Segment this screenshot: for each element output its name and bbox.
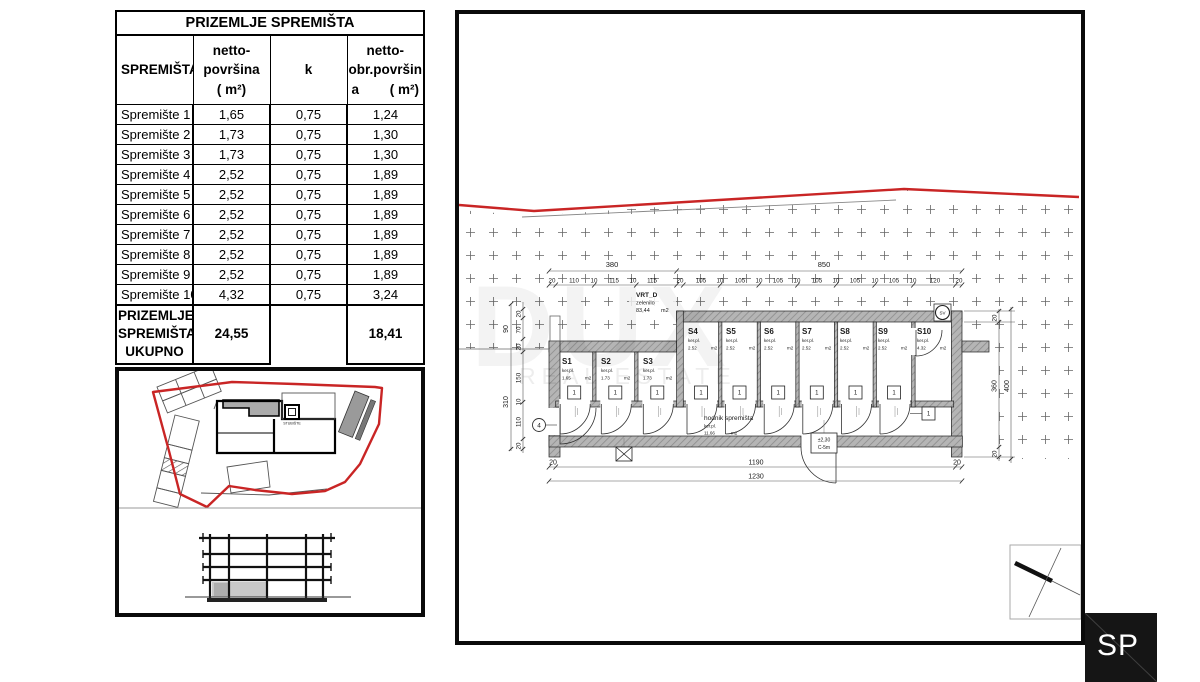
dim-seg: 105	[696, 278, 707, 285]
dim-seg: 10	[756, 278, 763, 285]
unit-sub: ker.pl.	[601, 368, 613, 373]
dim-seg: 10	[591, 278, 598, 285]
floor-plan-panel: VRT_D zelenilo 83,44 m2 DUX REA	[455, 10, 1085, 645]
dim-seg: 110	[569, 278, 579, 285]
hdr-line: netto-	[367, 43, 405, 58]
corridor-area: 11.66	[704, 431, 715, 436]
unit-area: 2.52	[688, 346, 697, 351]
unit-area: 1.73	[601, 376, 610, 381]
unit-id: S3	[643, 357, 653, 366]
logo-text: SP	[1097, 629, 1139, 663]
row-obr: 1,30	[347, 145, 424, 165]
elevation-gray-small	[214, 583, 229, 596]
row-netto: 2,52	[193, 165, 270, 185]
corridor-name: hodnik spremišta	[704, 415, 754, 422]
unit-m2: m2	[585, 376, 592, 381]
unit-sub: ker.pl.	[802, 338, 814, 343]
row-k: 0,75	[270, 205, 347, 225]
row-obr: 1,89	[347, 185, 424, 205]
site-plan: STUBIŠTE	[153, 371, 382, 507]
row-netto: 2,52	[193, 245, 270, 265]
unit-sub: ker.pl.	[688, 338, 700, 343]
row-name: Spremište 4	[116, 165, 193, 185]
row-netto: 2,52	[193, 205, 270, 225]
unit-id: S6	[764, 327, 774, 336]
dim-seg: 10	[717, 278, 724, 285]
row-netto: 2,52	[193, 185, 270, 205]
row-netto: 2,52	[193, 225, 270, 245]
row-obr: 1,89	[347, 265, 424, 285]
unit-area: 2.52	[802, 346, 811, 351]
dim-seg: 20	[992, 314, 999, 321]
row-netto: 4,32	[193, 285, 270, 306]
site-retaining-walls	[339, 391, 377, 440]
dim-seg: 20	[953, 460, 961, 467]
dim-seg: 20	[549, 460, 557, 467]
sv-label: SV	[939, 311, 945, 316]
table-row: Spremište 92,520,751,89	[116, 265, 424, 285]
dim-seg: 105	[735, 278, 746, 285]
dim-seg: 20	[992, 450, 999, 457]
row-netto: 1,65	[193, 105, 270, 125]
hdr-frag: a	[352, 80, 360, 100]
row-name: Spremište 8	[116, 245, 193, 265]
unit-area: 4.32	[917, 346, 926, 351]
row-name: Spremište 9	[116, 265, 193, 285]
dim-total-360: 360	[992, 380, 999, 392]
table-row: Spremište 104,320,753,24	[116, 285, 424, 306]
unit-m2: m2	[901, 346, 908, 351]
unit-area: 2.52	[840, 346, 849, 351]
unit-area: 2.52	[764, 346, 773, 351]
table-row: Spremište 82,520,751,89	[116, 245, 424, 265]
dim-total-310: 310	[503, 396, 510, 408]
elevation-base	[207, 598, 327, 602]
table-row: Spremište 31,730,751,30	[116, 145, 424, 165]
unit-sub: ker.pl.	[764, 338, 776, 343]
unit-m2: m2	[863, 346, 870, 351]
hdr-line: a( m²)	[349, 80, 423, 100]
row-name: Spremište 2	[116, 125, 193, 145]
row-k: 0,75	[270, 225, 347, 245]
unit-id: S10	[917, 327, 932, 336]
row-name: Spremište 7	[116, 225, 193, 245]
dim-seg: 115	[647, 278, 657, 285]
dim-seg: 120	[930, 278, 941, 285]
row-name: Spremište 3	[116, 145, 193, 165]
row-k: 0,75	[270, 285, 347, 306]
row-obr: 1,24	[347, 105, 424, 125]
total-line: SPREMIŠTA	[118, 326, 193, 341]
unit-sub: ker.pl.	[643, 368, 655, 373]
dim-seg: 105	[889, 278, 900, 285]
unit-area: 2.52	[878, 346, 887, 351]
row-obr: 1,30	[347, 125, 424, 145]
total-line: UKUPNO	[125, 344, 184, 359]
dim-seg: 10	[872, 278, 879, 285]
unit-id: S5	[726, 327, 736, 336]
row-obr: 1,89	[347, 245, 424, 265]
table-row: Spremište 11,650,751,24	[116, 105, 424, 125]
row-name: Spremište 10	[116, 285, 193, 306]
dim-seg: 70	[516, 326, 523, 333]
row-name: Spremište 1	[116, 105, 193, 125]
hdr-line: ( m²)	[217, 82, 246, 97]
dim-seg: 150	[516, 372, 523, 383]
unit-area: 1.73	[643, 376, 652, 381]
unit-m2: m2	[666, 376, 673, 381]
col-header-netto-obr: netto- obr.površin a( m²)	[347, 35, 424, 105]
dim-seg: 10	[910, 278, 917, 285]
dim-seg: 10	[794, 278, 801, 285]
row-k: 0,75	[270, 265, 347, 285]
table-row: Spremište 52,520,751,89	[116, 185, 424, 205]
dim-seg: 20	[956, 278, 963, 285]
row-name: Spremište 6	[116, 205, 193, 225]
dim-total-850: 850	[818, 260, 831, 269]
row-netto: 1,73	[193, 125, 270, 145]
agency-logo: SP	[1085, 613, 1157, 682]
floor-plan-drawing: VRT_D zelenilo 83,44 m2 DUX REA	[459, 14, 1081, 641]
dim-total-400: 400	[1004, 380, 1011, 392]
corridor-sub: ker.pl.	[704, 424, 716, 429]
table-row: Spremište 21,730,751,30	[116, 125, 424, 145]
row-k: 0,75	[270, 165, 347, 185]
row-obr: 1,89	[347, 205, 424, 225]
dim-seg: 105	[773, 278, 784, 285]
total-obr: 18,41	[347, 305, 424, 364]
siteplan-elevation-panel: STUBIŠTE	[115, 367, 425, 617]
dim-seg: 115	[609, 278, 619, 285]
siteplan-drawing: STUBIŠTE	[119, 371, 421, 613]
unit-m2: m2	[825, 346, 832, 351]
tag-code: C-5m	[818, 445, 830, 451]
page: { "table": { "title": "PRIZEMLJE SPREMIŠ…	[0, 0, 1200, 682]
dim-seg: 10	[630, 278, 637, 285]
tag-level: ±2,30	[818, 438, 831, 444]
unit-m2: m2	[711, 346, 718, 351]
row-k: 0,75	[270, 105, 347, 125]
dim-seg: 20	[516, 343, 523, 350]
dim-seg: 105	[812, 278, 823, 285]
elevation-drawing	[185, 533, 351, 602]
table-row: Spremište 42,520,751,89	[116, 165, 424, 185]
total-netto: 24,55	[193, 305, 270, 364]
row-netto: 2,52	[193, 265, 270, 285]
dim-seg: 20	[516, 442, 523, 449]
row-obr: 1,89	[347, 165, 424, 185]
corridor-m2: m2	[731, 431, 738, 436]
dim-seg: 20	[677, 278, 684, 285]
unit-sub: ker.pl.	[726, 338, 738, 343]
north-arrow-box	[1010, 545, 1081, 619]
dim-seg: 1190	[748, 460, 763, 467]
row-name: Spremište 5	[116, 185, 193, 205]
unit-m2: m2	[940, 346, 947, 351]
unit-id: S9	[878, 327, 888, 336]
unit-area: 2.52	[726, 346, 735, 351]
unit-id: S2	[601, 357, 611, 366]
total-label: PRIZEMLJE SPREMIŠTA UKUPNO	[116, 305, 193, 364]
sv-symbol: SV	[934, 304, 951, 321]
hdr-line: netto-	[213, 43, 251, 58]
dim-seg: 10	[516, 398, 523, 405]
table-total-row: PRIZEMLJE SPREMIŠTA UKUPNO 24,55 18,41	[116, 305, 424, 364]
row-k: 0,75	[270, 145, 347, 165]
hdr-frag: ( m²)	[390, 80, 419, 100]
storage-area-table: PRIZEMLJE SPREMIŠTA SPREMIŠTA netto- pov…	[115, 10, 425, 365]
hdr-line: obr.površin	[349, 62, 423, 77]
dim-seg: 20	[549, 278, 556, 285]
bubble-label: 4	[537, 423, 541, 430]
row-netto: 1,73	[193, 145, 270, 165]
unit-sub: ker.pl.	[878, 338, 890, 343]
dim-total-1230: 1230	[748, 474, 764, 481]
dim-seg: 105	[850, 278, 861, 285]
unit-id: S7	[802, 327, 812, 336]
unit-m2: m2	[787, 346, 794, 351]
col-header-spremista: SPREMIŠTA	[116, 35, 193, 105]
row-k: 0,75	[270, 245, 347, 265]
prizemlje-spremista-table: PRIZEMLJE SPREMIŠTA SPREMIŠTA netto- pov…	[115, 10, 425, 365]
row-obr: 1,89	[347, 225, 424, 245]
row-k: 0,75	[270, 185, 347, 205]
total-k-empty	[270, 305, 347, 364]
row-k: 0,75	[270, 125, 347, 145]
dim-total-90: 90	[503, 325, 510, 333]
hdr-line: površina	[203, 62, 259, 77]
unit-id: S8	[840, 327, 850, 336]
unit-m2: m2	[749, 346, 756, 351]
unit-m2: m2	[624, 376, 631, 381]
dim-seg: 20	[516, 310, 523, 317]
unit-sub: ker.pl.	[840, 338, 852, 343]
row-obr: 3,24	[347, 285, 424, 306]
table-row: Spremište 72,520,751,89	[116, 225, 424, 245]
site-building-footprint: STUBIŠTE	[217, 393, 335, 453]
unit-id: S1	[562, 357, 572, 366]
col-header-k: k	[270, 35, 347, 105]
total-line: PRIZEMLJE	[118, 308, 193, 323]
table-title: PRIZEMLJE SPREMIŠTA	[116, 11, 424, 35]
unit-id: S4	[688, 327, 698, 336]
stubiste-label: STUBIŠTE	[283, 421, 301, 426]
dim-seg: 110	[516, 417, 523, 427]
unit-sub: ker.pl.	[562, 368, 574, 373]
unit-sub: ker.pl.	[917, 338, 929, 343]
unit-area: 1.65	[562, 376, 571, 381]
col-header-netto: netto- površina ( m²)	[193, 35, 270, 105]
table-row: Spremište 62,520,751,89	[116, 205, 424, 225]
dim-total-380: 380	[606, 260, 619, 269]
dim-seg: 10	[833, 278, 840, 285]
